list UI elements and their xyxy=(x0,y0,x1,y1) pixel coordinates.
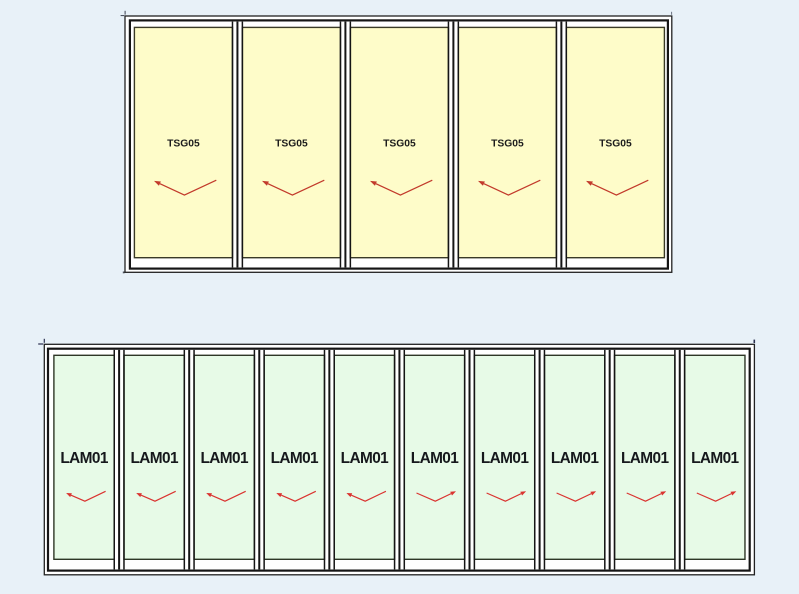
svg-text:TSG05: TSG05 xyxy=(383,139,416,150)
svg-text:TSG05: TSG05 xyxy=(491,139,524,150)
svg-text:LAM01: LAM01 xyxy=(621,450,669,467)
svg-text:LAM01: LAM01 xyxy=(341,450,389,467)
svg-text:LAM01: LAM01 xyxy=(481,450,529,467)
svg-text:TSG05: TSG05 xyxy=(599,139,632,150)
svg-text:LAM01: LAM01 xyxy=(271,450,319,467)
svg-text:LAM01: LAM01 xyxy=(200,450,248,467)
svg-text:TSG05: TSG05 xyxy=(275,139,308,150)
svg-text:LAM01: LAM01 xyxy=(60,450,108,467)
svg-text:LAM01: LAM01 xyxy=(130,450,178,467)
svg-text:LAM01: LAM01 xyxy=(411,450,459,467)
svg-text:LAM01: LAM01 xyxy=(551,450,599,467)
svg-text:TSG05: TSG05 xyxy=(167,139,200,150)
svg-text:LAM01: LAM01 xyxy=(691,450,739,467)
